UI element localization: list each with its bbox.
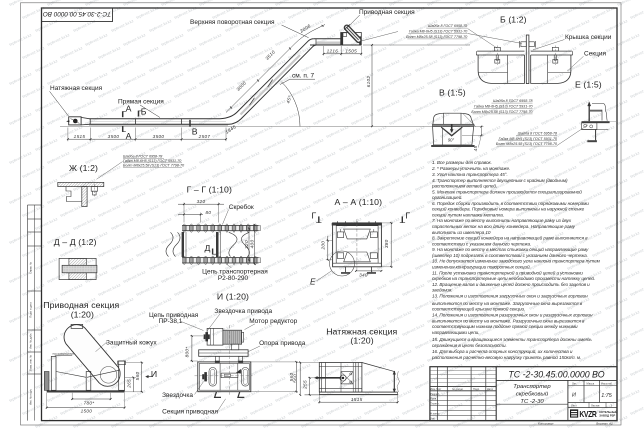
svg-text:скребков на транспортерные цеп: скребков на транспортерные цепи необходи… [432, 275, 595, 281]
svg-text:Изм.Лист: Изм.Лист [430, 387, 442, 391]
svg-text:Шайба 8 ГОСТ 6958-78: Шайба 8 ГОСТ 6958-78 [123, 154, 162, 158]
svg-text:13. Положения и изготовления з: 13. Положения и изготовления загрузочных… [432, 293, 588, 298]
svg-text:9. На монтаже по месту в места: 9. На монтаже по месту в местах стыковки… [432, 246, 589, 252]
svg-text:организацией.: организацией. [432, 194, 462, 200]
svg-text:расположением ветвей цепей.: расположением ветвей цепей. [431, 183, 497, 189]
svg-text:Лит.: Лит. [572, 381, 577, 385]
svg-text:Инв. № подл.: Инв. № подл. [29, 389, 33, 405]
svg-text:1216: 1216 [327, 48, 339, 53]
svg-text:Звездочка: Звездочка [162, 392, 193, 399]
svg-text:8. Закрепление секций конвейер: 8. Закрепление секций конвейера на напра… [432, 235, 588, 241]
svg-text:16. Для выбора и расчета опор: 16. Для выбора и расчета опорных констру… [432, 348, 573, 354]
svg-text:направляющими цепи.: направляющими цепи. [432, 330, 479, 335]
svg-text:Формат А2: Формат А2 [596, 421, 613, 425]
svg-text:Масштаб: Масштаб [601, 381, 613, 385]
svg-text:Секция приводная: Секция приводная [162, 409, 218, 416]
svg-text:2. * Размеры уточнить на монта: 2. * Размеры уточнить на монтаже. [431, 166, 510, 171]
svg-text:800*: 800* [185, 347, 190, 358]
svg-text:255: 255 [302, 380, 307, 390]
svg-text:Натяжная секция: Натяжная секция [50, 85, 103, 92]
svg-text:11. После установки транспорте: 11. После установки транспортерной и при… [432, 269, 583, 275]
svg-text:А: А [126, 104, 132, 114]
svg-text:560: 560 [135, 372, 140, 381]
svg-text:Утв.: Утв. [430, 417, 435, 421]
svg-text:Мотор редуктор: Мотор редуктор [249, 318, 297, 325]
svg-text:Болт М8х25.58 (S13) ГОСТ 7798-: Болт М8х25.58 (S13) ГОСТ 7798-70 [123, 163, 184, 167]
svg-text:ограждения в целях безопасност: ограждения в целях безопасности. [432, 343, 507, 348]
svg-text:15. Движущиеся и вращающиеся: 15. Движущиеся и вращающиеся элементы тр… [432, 337, 592, 342]
svg-text:400: 400 [249, 240, 254, 249]
svg-text:Б (1:2): Б (1:2) [500, 14, 527, 24]
svg-text:Секция: Секция [584, 51, 607, 58]
svg-text:Защитный кожух: Защитный кожух [106, 338, 157, 346]
svg-text:Лист: Лист [571, 404, 577, 408]
svg-text:560: 560 [292, 374, 297, 383]
svg-text:380: 380 [384, 239, 389, 248]
svg-text:320: 320 [197, 199, 206, 204]
svg-text:Т.контр.: Т.контр. [430, 402, 440, 406]
svg-text:Г: Г [405, 210, 410, 220]
svg-text:265: 265 [127, 379, 132, 389]
svg-text:1:75: 1:75 [601, 393, 612, 399]
svg-text:Взам. инв. №: Взам. инв. № [29, 355, 33, 371]
svg-text:секции путем наплавки металла.: секции путем наплавки металла. [432, 213, 504, 218]
svg-text:Е: Е [310, 278, 316, 287]
svg-text:Скребок: Скребок [229, 203, 254, 211]
svg-text:Справ. №: Справ. № [29, 262, 33, 274]
svg-text:Ж (1:2): Ж (1:2) [69, 163, 98, 173]
svg-text:Е (1:5): Е (1:5) [575, 79, 602, 89]
svg-text:ЗАВОД РЗР: ЗАВОД РЗР [599, 414, 615, 418]
svg-text:В: В [192, 126, 198, 136]
svg-text:80: 80 [206, 210, 212, 215]
svg-text:выполнить из швеллера 10: выполнить из швеллера 10 [432, 230, 491, 235]
svg-text:780*: 780* [84, 400, 95, 405]
svg-text:Д: Д [205, 243, 211, 253]
svg-text:соответствующей крышке прямой: соответствующей крышке прямой секции. [432, 306, 525, 312]
svg-text:Шайба 8 ГОСТ 6958-78: Шайба 8 ГОСТ 6958-78 [493, 99, 532, 103]
svg-text:Б: Б [141, 106, 147, 116]
svg-text:заедания.: заедания. [431, 288, 453, 293]
svg-text:340: 340 [359, 272, 368, 277]
svg-text:(швеллер 10) подрезать в соотв: (швеллер 10) подрезать в соответствии с … [432, 253, 588, 258]
svg-text:см. п. 7: см. п. 7 [292, 73, 314, 80]
svg-text:Н.контр.: Н.контр. [430, 412, 440, 416]
svg-text:Разраб.: Разраб. [430, 392, 440, 396]
svg-text:секций конвейера. Порядковые н: секций конвейера. Порядковые номера выпо… [432, 206, 585, 212]
svg-text:Опора привода: Опора привода [259, 340, 306, 347]
svg-text:3500: 3500 [153, 134, 165, 139]
svg-text:Болт М8х25.58 (S13) ГОСТ 7798-: Болт М8х25.58 (S13) ГОСТ 7798-70 [496, 142, 557, 146]
svg-text:Верхняя поворотная секция: Верхняя поворотная секция [190, 19, 275, 26]
svg-text:4. Транспортер выполняется дв: 4. Транспортер выполняется двухцепным с … [432, 177, 568, 183]
svg-text:скребковый: скребковый [516, 391, 549, 398]
svg-text:3. Угол наклона транспортера: 3. Угол наклона транспортера 45°. [432, 172, 508, 177]
svg-text:соответствии с указанием данно: соответствии с указанием данного чертежа… [432, 241, 531, 246]
svg-text:Дата: Дата [487, 387, 493, 391]
svg-text:ТС -2-30.45.00.0000 ВО: ТС -2-30.45.00.0000 ВО [508, 370, 604, 380]
svg-text:В (1:5): В (1:5) [439, 88, 466, 98]
svg-text:Инв. № дубл.: Инв. № дубл. [29, 333, 33, 349]
svg-text:6. Порядок сборки производить: 6. Порядок сборки производить в соответс… [432, 201, 589, 206]
svg-text:200: 200 [320, 241, 325, 251]
svg-text:1500: 1500 [81, 408, 93, 413]
svg-text:Болт М8х25.58 (S13) ГОСТ 7798-: Болт М8х25.58 (S13) ГОСТ 7798-70 [471, 110, 532, 114]
svg-text:И: И [572, 392, 576, 398]
svg-text:Копировал: Копировал [538, 421, 554, 425]
svg-text:Подп. и дата: Подп. и дата [29, 302, 33, 318]
svg-text:выполняются по месту на монтаж: выполняются по месту на монтаже. Загрузо… [432, 301, 583, 306]
svg-text:Д – Д (1:2): Д – Д (1:2) [54, 237, 97, 247]
svg-text:Гайка М8-6Н5 (S13) ГОСТ 5931-7: Гайка М8-6Н5 (S13) ГОСТ 5931-70 [409, 30, 467, 34]
svg-text:Приводная секция: Приводная секция [359, 9, 415, 16]
svg-text:А: А [126, 131, 132, 141]
svg-text:10. Не допускается изменение з: 10. Не допускается изменение заводского … [432, 259, 601, 264]
svg-text:Гайка М8-6Н5 (S13) ГОСТ 5931-7: Гайка М8-6Н5 (S13) ГОСТ 5931-70 [499, 137, 557, 141]
svg-text:6102: 6102 [366, 76, 371, 88]
svg-text:Г – Г (1:10): Г – Г (1:10) [187, 184, 232, 194]
svg-text:3500: 3500 [108, 134, 120, 139]
svg-text:Болт М8х25.58 (S13) ГОСТ 7798-: Болт М8х25.58 (S13) ГОСТ 7798-70 [406, 35, 467, 39]
svg-text:12. Вращение валов и движение: 12. Вращение валов и движение цепей долж… [432, 281, 590, 287]
svg-text:Пров.: Пров. [430, 397, 437, 401]
svg-text:Подп.: Подп. [473, 387, 480, 391]
svg-text:изменения конфигурации поворот: изменения конфигурации поворотных секций… [432, 264, 531, 270]
svg-text:И (1:20): И (1:20) [217, 291, 249, 301]
svg-text:14. Положения и изготовления: 14. Положения и изготовления разгрузочны… [432, 312, 593, 317]
svg-text:Масса: Масса [587, 381, 595, 385]
svg-text:И: И [151, 369, 157, 379]
svg-text:Звездочка привода: Звездочка привода [214, 308, 272, 315]
svg-text:Гайка М8-6Н5 (S13) ГОСТ 5931-7: Гайка М8-6Н5 (S13) ГОСТ 5931-70 [123, 159, 181, 163]
svg-text:1505: 1505 [345, 48, 357, 53]
svg-text:ТС -2-30: ТС -2-30 [520, 399, 544, 405]
svg-text:90°: 90° [448, 138, 455, 143]
svg-text:1. Все размеры для справок.: 1. Все размеры для справок. [432, 160, 492, 165]
svg-text:Транспортер: Транспортер [513, 384, 551, 390]
svg-text:KVZR: KVZR [579, 409, 596, 419]
svg-text:Гайка М8-6Н5 (S13) ГОСТ 5931-7: Гайка М8-6Н5 (S13) ГОСТ 5931-70 [474, 105, 532, 109]
svg-text:Листов: Листов [591, 404, 600, 408]
svg-text:2507: 2507 [198, 134, 211, 139]
svg-text:А – А (1:10): А – А (1:10) [335, 197, 383, 207]
svg-text:Шайба 8 ГОСТ 6958-78: Шайба 8 ГОСТ 6958-78 [428, 24, 467, 28]
svg-text:(1:20): (1:20) [71, 309, 94, 319]
svg-text:соответствующим нижним поддоне: соответствующим нижним поддоне прямой се… [432, 323, 578, 329]
svg-text:1515: 1515 [351, 397, 363, 402]
svg-text:ТС-2-30.45.00.0000 ВО: ТС-2-30.45.00.0000 ВО [43, 10, 111, 17]
svg-text:выполняются по месту на монтаж: выполняются по месту на монтаже. Разгруз… [432, 318, 585, 323]
svg-text:320: 320 [244, 240, 249, 249]
svg-text:ПР-38,1: ПР-38,1 [159, 318, 183, 325]
svg-text:параллельных веток на всю длин: параллельных веток на всю длину конвейер… [432, 223, 576, 229]
svg-text:45: 45 [473, 146, 478, 152]
svg-text:Шайба 8 ГОСТ 6958-78: Шайба 8 ГОСТ 6958-78 [518, 131, 557, 135]
svg-text:5. Монтаж транспортера должен: 5. Монтаж транспортера должен производит… [432, 188, 582, 194]
svg-text:Г: Г [312, 210, 317, 220]
svg-text:исп.транспортера: исп.транспортера [53, 352, 75, 355]
svg-text:1515: 1515 [74, 134, 86, 139]
svg-text:(1:20): (1:20) [350, 336, 373, 346]
svg-text:Крышка секции: Крышка секции [565, 34, 612, 41]
svg-text:расположения расчетно-весовую: расположения расчетно-весовую нагрузку п… [431, 354, 581, 360]
svg-text:№ докум.: № докум. [452, 388, 464, 391]
svg-text:7. На монтаже по месту выполни: 7. На монтаже по месту выполнить направл… [432, 218, 572, 223]
svg-text:Р2-80-290: Р2-80-290 [218, 275, 249, 282]
